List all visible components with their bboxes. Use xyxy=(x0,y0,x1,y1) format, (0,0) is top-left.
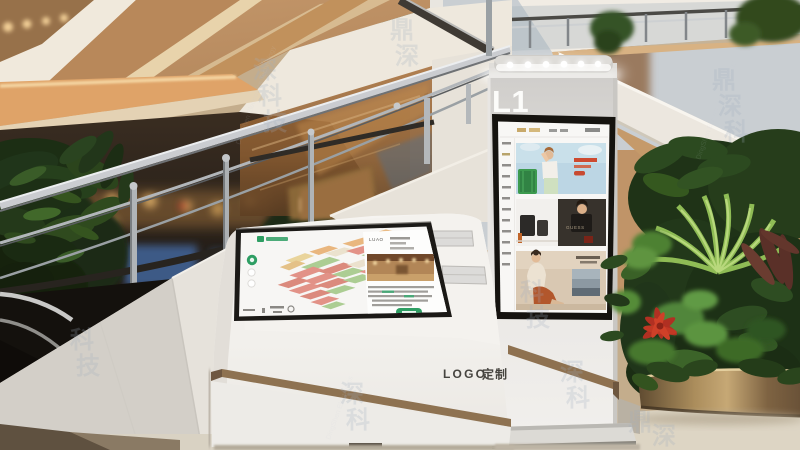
svg-text:鼎: 鼎 xyxy=(628,409,652,436)
svg-text:技: 技 xyxy=(526,305,551,332)
svg-text:L1: L1 xyxy=(492,84,529,119)
svg-text:LUAO: LUAO xyxy=(369,237,384,242)
svg-text:定制: 定制 xyxy=(482,367,508,382)
svg-text:深: 深 xyxy=(560,359,584,386)
svg-text:科: 科 xyxy=(724,119,748,146)
svg-text:科: 科 xyxy=(70,327,94,354)
svg-text:技: 技 xyxy=(76,353,101,380)
svg-text:LOGO: LOGO xyxy=(443,367,487,381)
svg-text:技: 技 xyxy=(263,109,288,136)
svg-text:深: 深 xyxy=(395,43,419,70)
svg-text:科: 科 xyxy=(346,407,370,434)
svg-text:鼎: 鼎 xyxy=(390,17,414,44)
svg-text:GUESS: GUESS xyxy=(566,225,585,230)
svg-text:科: 科 xyxy=(566,385,590,412)
svg-text:深: 深 xyxy=(652,423,676,450)
svg-text:科: 科 xyxy=(520,279,544,306)
